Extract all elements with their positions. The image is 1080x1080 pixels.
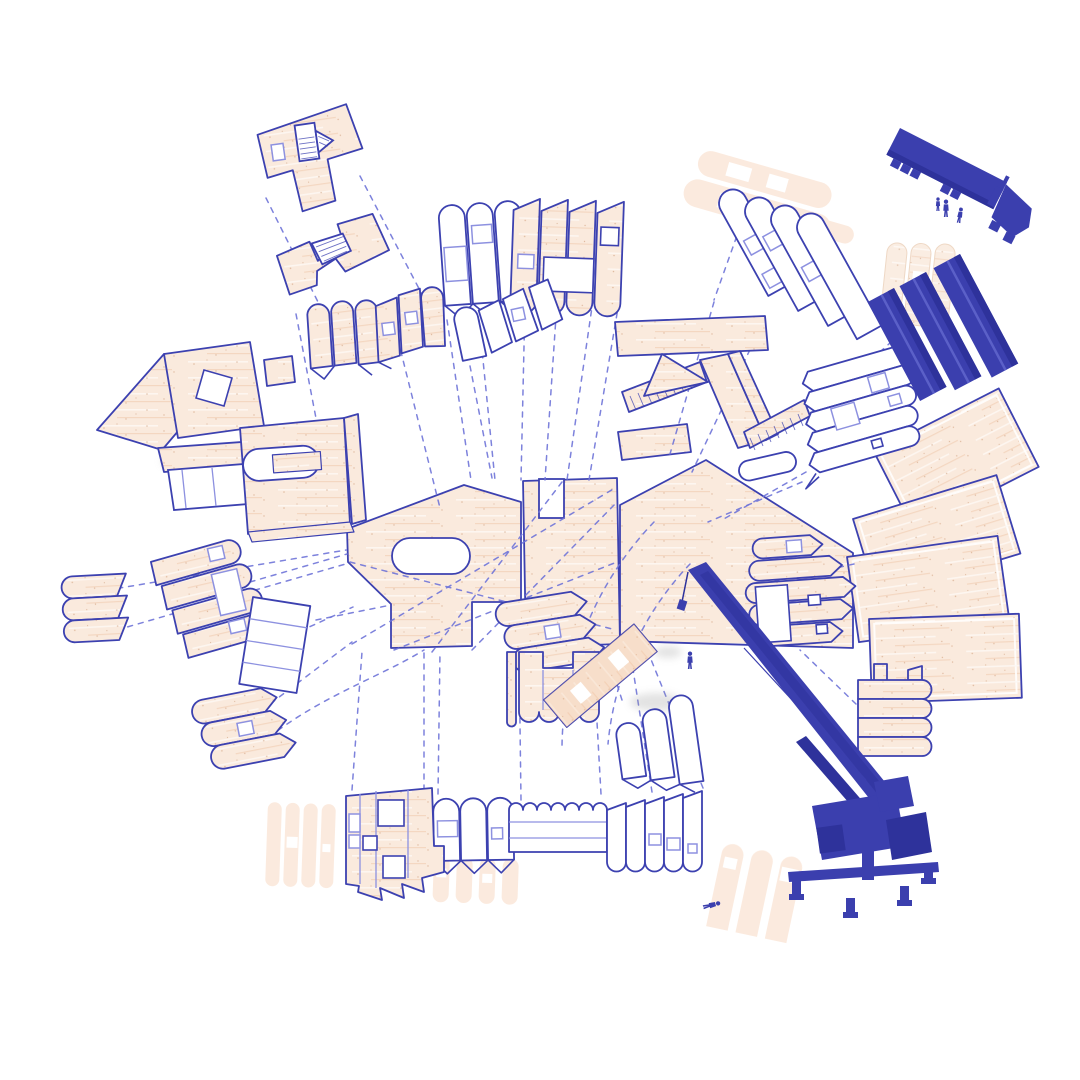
ghost-panel-group <box>432 856 519 905</box>
ghost-panel-group <box>706 842 804 943</box>
stair-slot <box>392 538 470 574</box>
worker-figure <box>956 207 963 223</box>
assembled-wall-module: Assembled timber wall module <box>97 342 366 542</box>
bottom-panel-assembly: Long facade assembly (bottom) <box>433 791 702 874</box>
crane-cab <box>874 776 914 812</box>
shadow <box>654 646 682 658</box>
bottom-left-wall-panels: Clad wall panels with windows (bottom le… <box>346 788 444 900</box>
worker-figure <box>943 200 948 217</box>
banded-panel-outline-2 <box>239 597 310 693</box>
small-slab <box>618 424 691 460</box>
flatbed-truck: Flatbed delivery truck <box>876 123 1045 248</box>
exploded-axonometric-diagram: Ghosted preview panels <box>0 0 1080 1080</box>
upper-left-floor-plate: Floor plate with stair opening (upper le… <box>255 103 370 216</box>
banded-panel-outline: Banded panel outline <box>737 450 798 483</box>
worker-figure <box>936 197 940 211</box>
diagram-canvas: Ghosted preview panels <box>0 0 1080 1080</box>
worker-figure <box>687 652 692 669</box>
lower-left-floor-plate: Floor plate with stair flight (upper lef… <box>273 212 393 295</box>
ghost-panel-group <box>265 802 336 888</box>
small-strip-stack: Small strip stack (far left) <box>61 574 129 643</box>
arched-panel-row: Row of arched clad panels <box>303 286 452 383</box>
arched-panel-trio: Trio of arched panels <box>612 694 705 802</box>
